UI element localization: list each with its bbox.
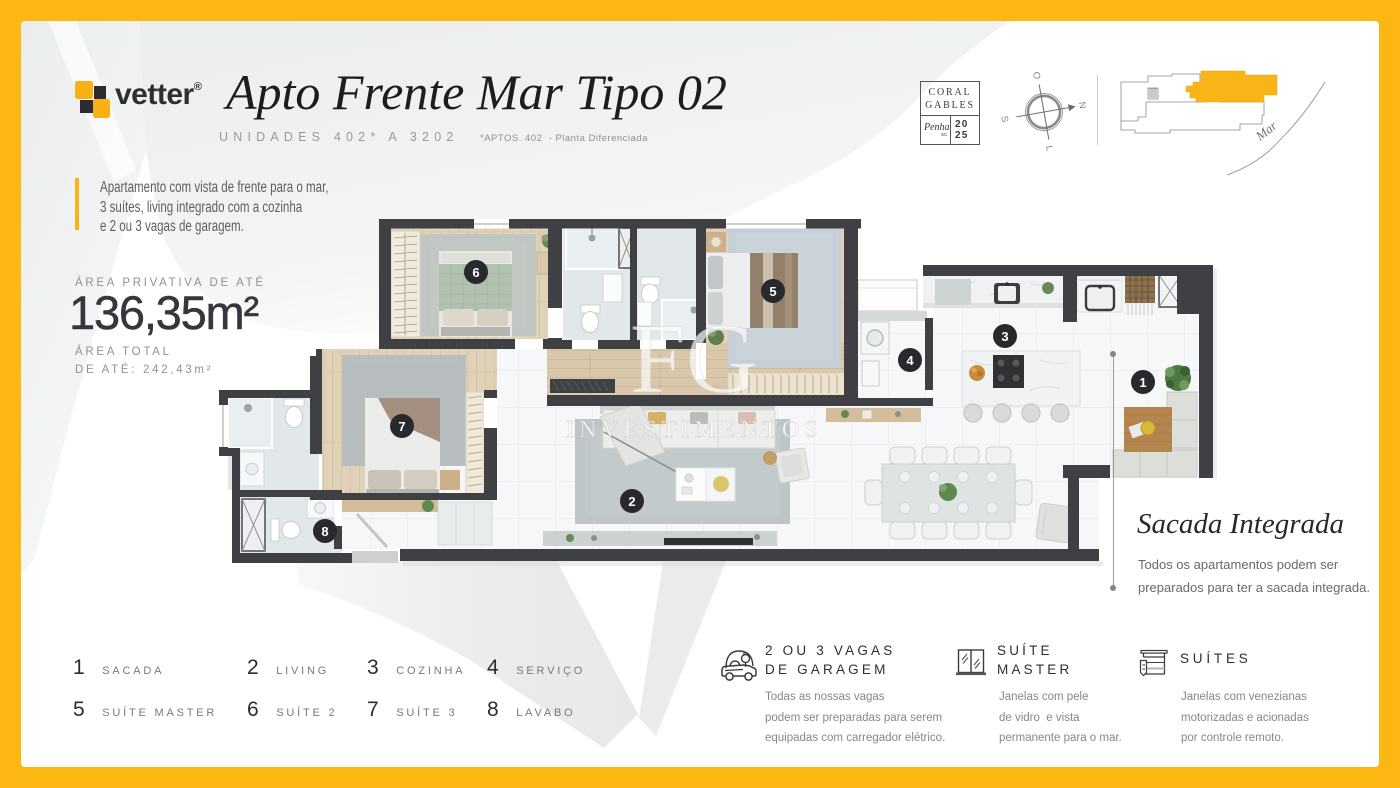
svg-text:L: L (1043, 145, 1055, 152)
svg-text:7: 7 (398, 419, 405, 434)
svg-text:8: 8 (321, 524, 328, 539)
svg-text:Mar: Mar (1252, 117, 1280, 144)
svg-text:INVESTIMENTOS: INVESTIMENTOS (566, 417, 823, 443)
svg-text:N: N (1076, 101, 1088, 110)
svg-text:O: O (1030, 71, 1042, 80)
svg-text:1: 1 (1139, 375, 1146, 390)
svg-text:FG: FG (630, 303, 758, 414)
svg-text:3: 3 (1001, 329, 1008, 344)
svg-text:6: 6 (472, 265, 479, 280)
svg-text:2: 2 (628, 494, 635, 509)
svg-text:4: 4 (906, 353, 914, 368)
svg-text:5: 5 (769, 284, 776, 299)
svg-text:S: S (998, 115, 1010, 123)
